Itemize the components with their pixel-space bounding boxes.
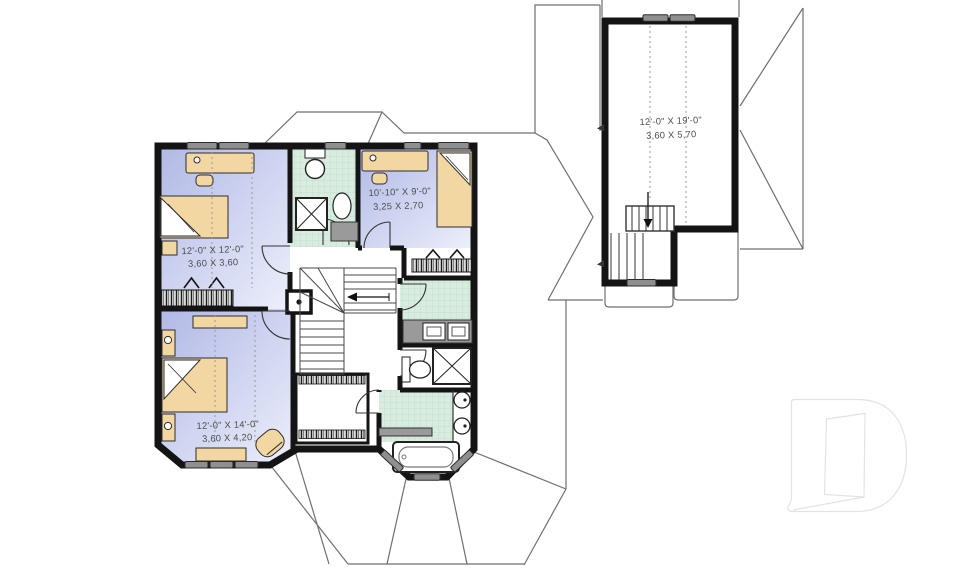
window bbox=[325, 143, 346, 150]
room-dimension-metric: 3,60 X 3,60 bbox=[188, 257, 239, 269]
toilet-tank bbox=[402, 357, 410, 382]
nightstand-symbol bbox=[162, 241, 177, 255]
garage-body-outline bbox=[674, 231, 738, 300]
washer-icon bbox=[423, 323, 445, 340]
window bbox=[643, 15, 668, 21]
side-hip bbox=[535, 133, 603, 300]
lamp-icon bbox=[164, 422, 171, 429]
lamp-icon bbox=[164, 336, 171, 343]
window bbox=[185, 462, 208, 469]
window bbox=[187, 143, 217, 150]
window bbox=[235, 462, 258, 469]
stair-direction-arrow bbox=[347, 293, 389, 302]
bonus-room-walls bbox=[605, 21, 735, 283]
window bbox=[404, 143, 421, 150]
stair-treads-upper bbox=[344, 275, 396, 310]
toilet-icon bbox=[410, 361, 431, 378]
window bbox=[219, 143, 249, 150]
lamp-icon bbox=[370, 155, 376, 161]
closet-shelf-hatch bbox=[412, 259, 472, 272]
stair-treads bbox=[611, 233, 643, 280]
room-dimension-metric: 3,60 X 5,70 bbox=[646, 129, 697, 141]
toilet-tank bbox=[305, 149, 325, 158]
lamp-icon bbox=[194, 157, 200, 163]
shelf-symbol bbox=[193, 316, 247, 328]
stair-treads-lower bbox=[300, 321, 344, 369]
garage-roof-right bbox=[740, 8, 803, 249]
roof-lines bbox=[262, 0, 803, 565]
bonus-stairs bbox=[611, 206, 674, 280]
toilet-icon bbox=[306, 160, 325, 179]
room-dimension-metric: 3,60 X 4,20 bbox=[202, 432, 253, 444]
floor-plan-svg: 12'-0" X 12'-0" 3,60 X 3,60 10'-10" X 9'… bbox=[0, 0, 960, 569]
closet-shelf-hatch bbox=[299, 376, 365, 385]
half-wall bbox=[379, 428, 432, 436]
vanity-counter bbox=[331, 222, 358, 241]
linen-dot bbox=[296, 299, 301, 304]
hall-closets bbox=[287, 291, 368, 443]
dryer-icon bbox=[448, 323, 469, 340]
window bbox=[210, 462, 233, 469]
garage-roof-top-ticks bbox=[602, 0, 739, 17]
bonus-room-label: 12'-0" X 19'-0" 3,60 X 5,70 bbox=[639, 115, 702, 141]
sink-icon bbox=[333, 193, 351, 219]
room-dimension-imperial: 12'-0" X 19'-0" bbox=[639, 115, 702, 127]
drummond-d-logo bbox=[788, 400, 907, 512]
stool-symbol bbox=[196, 175, 213, 186]
floor-plan-image: 12'-0" X 12'-0" 3,60 X 3,60 10'-10" X 9'… bbox=[0, 0, 960, 569]
sink-icon bbox=[454, 392, 470, 408]
wc-fixtures bbox=[402, 348, 471, 384]
sink-icon bbox=[454, 418, 470, 434]
window bbox=[670, 15, 695, 21]
garage-landing-outline bbox=[605, 284, 673, 307]
window bbox=[627, 280, 656, 287]
room-dimension-metric: 3,25 X 2,70 bbox=[373, 200, 424, 212]
window bbox=[414, 474, 440, 481]
upper-eave bbox=[404, 5, 600, 133]
dormer-roof bbox=[262, 112, 404, 146]
closet-shelf-hatch bbox=[161, 290, 233, 306]
closet-shelf-hatch bbox=[299, 430, 365, 439]
main-stairs bbox=[300, 268, 396, 374]
window bbox=[438, 143, 469, 150]
dresser-symbol bbox=[196, 448, 246, 461]
laundry-fixtures bbox=[403, 320, 472, 343]
stool-symbol bbox=[372, 173, 387, 184]
